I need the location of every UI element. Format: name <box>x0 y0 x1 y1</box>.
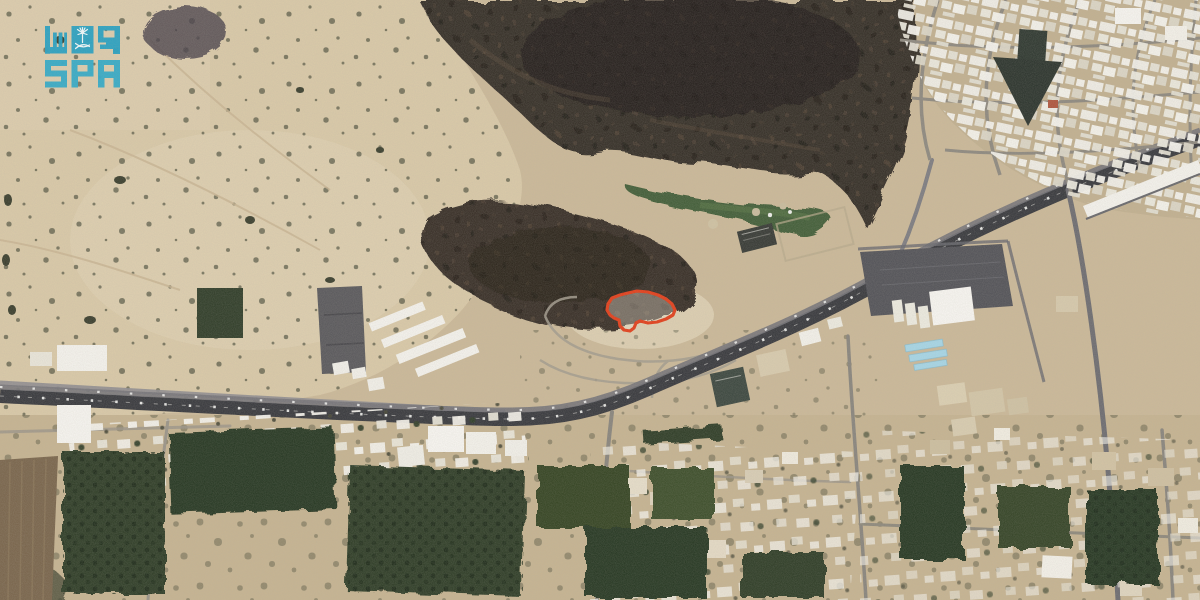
photo-grain-overlay <box>0 0 1200 600</box>
satellite-image: SPA واس SPA <box>0 0 1200 600</box>
satellite-map: SPA واس SPA <box>0 0 1200 600</box>
